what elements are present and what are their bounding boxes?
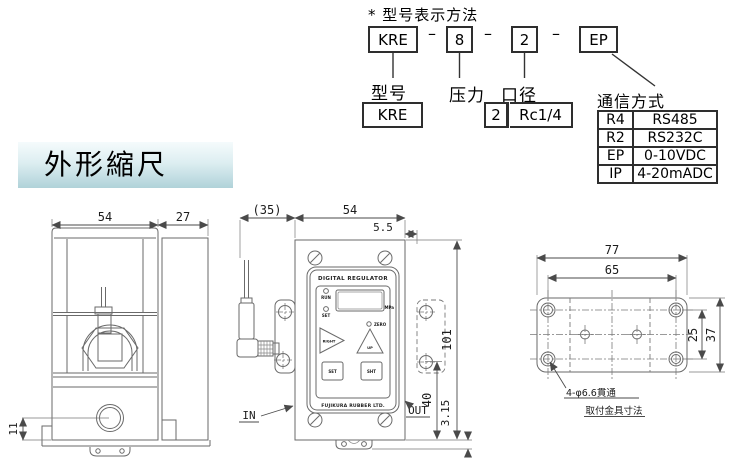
dim-label-base-offset: 3.15 [439,400,452,427]
code-box-model: KRE [368,26,418,53]
label-comm: 通信方式 [597,88,665,112]
comm-method-table: R4 RS485 R2 RS232C EP 0-10VDC IP 4-20mAD… [597,110,718,184]
comm-name: RS485 [633,111,717,129]
unit-label: MPa [384,305,394,310]
code-box-pressure: 8 [446,26,473,53]
dim-label-pitch: 25 [686,328,700,342]
code-dash: – [480,24,496,43]
set-led-label: SET [322,313,331,318]
label-model: 型号 [371,79,407,104]
bracket-caption: 取付金具寸法 [585,405,642,417]
set-led-icon [324,307,329,312]
panel-title: DIGITAL REGULATOR [318,276,388,282]
code-dash: – [424,24,440,43]
zero-led-label: ZERO [374,322,387,327]
model-value-box: KRE [362,102,423,128]
label-pressure: 压力 [449,81,485,106]
up-key-label: UP [367,346,373,350]
code-dash: – [548,24,564,43]
run-led-label: RUN [321,295,331,300]
dim-label-port-height: 11 [7,422,20,435]
bracket-dimensions: 77 65 25 37 4-φ6.6貫通 取付金具寸法 [537,243,725,417]
hole-note: 4-φ6.6貫通 [566,388,616,399]
dim-label-height: 37 [704,328,718,342]
display-window [336,290,384,311]
comm-code: R4 [598,111,633,129]
comm-code: R2 [598,129,633,147]
table-row: R4 RS485 [598,111,717,129]
cable-connector [237,260,279,357]
comm-code: EP [598,147,633,165]
run-led-icon [324,289,329,294]
zero-led-icon [367,322,371,326]
front-view-dimensions: (35) 54 5.5 101 40 3.15 IN OUT [239,203,472,457]
dim-label-height: 101 [440,329,454,351]
yoke-arch [83,325,137,371]
comm-name: 0-10VDC [633,147,717,165]
set-key-label: SET [328,369,337,374]
table-row: EP 0-10VDC [598,147,717,165]
dim-label-depth: 27 [176,210,190,224]
panel-texts: DIGITAL REGULATOR RUN SET MPa ZERO RIGHT… [318,276,394,409]
maker-label: FUJIKURA RUBBER LTD. [321,403,385,409]
bracket-view-drawing: 77 65 25 37 4-φ6.6貫通 取付金具寸法 [500,235,750,435]
table-row: R2 RS232C [598,129,717,147]
comm-code: IP [598,165,633,183]
face-plate [295,240,405,449]
comm-name: 4-20mADC [633,165,717,183]
device-body-outline [42,228,210,456]
dim-label-bracket-offset: (35) [253,203,282,217]
catalog-page: * 型号表示方法 KRE – 8 – 2 – EP 型号 压力 口径 通信方式 … [0,0,750,464]
dim-label-width: 54 [98,210,112,224]
bore-thread-box: Rc1/4 [510,102,573,128]
model-designation-title: * 型号表示方法 [368,4,478,25]
in-port-label: IN [242,409,255,422]
side-plate [162,238,208,440]
bracket-centerlines [530,290,695,380]
dim-label-width: 77 [605,243,619,257]
table-row: IP 4-20mADC [598,165,717,183]
code-box-bore: 2 [511,26,538,53]
dim-label-edge: 5.5 [373,221,393,234]
front-view-drawing: DIGITAL REGULATOR RUN SET MPa ZERO RIGHT… [220,200,480,464]
code-box-comm: EP [579,26,618,53]
dim-label-hole-spacing: 65 [605,263,619,277]
right-key-label: RIGHT [323,340,336,344]
comm-name: RS232C [633,129,717,147]
side-view-drawing: 54 27 11 [10,200,220,464]
shift-key-label: SHT [367,369,376,374]
dim-label-width: 54 [343,203,357,217]
bore-size-box: 2 [484,102,509,128]
section-header-outline-scale: 外形縮尺 [18,142,233,188]
